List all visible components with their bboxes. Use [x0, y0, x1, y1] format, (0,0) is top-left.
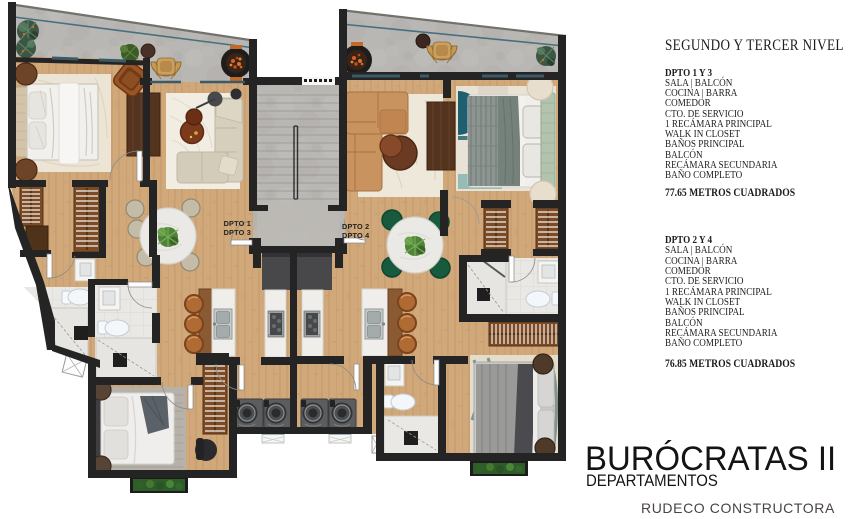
- svg-text:DPTO 2: DPTO 2: [342, 222, 369, 231]
- svg-text:DPTO 3: DPTO 3: [224, 228, 251, 237]
- svg-text:DPTO 4: DPTO 4: [342, 231, 370, 240]
- svg-text:DPTO 1: DPTO 1: [224, 219, 251, 228]
